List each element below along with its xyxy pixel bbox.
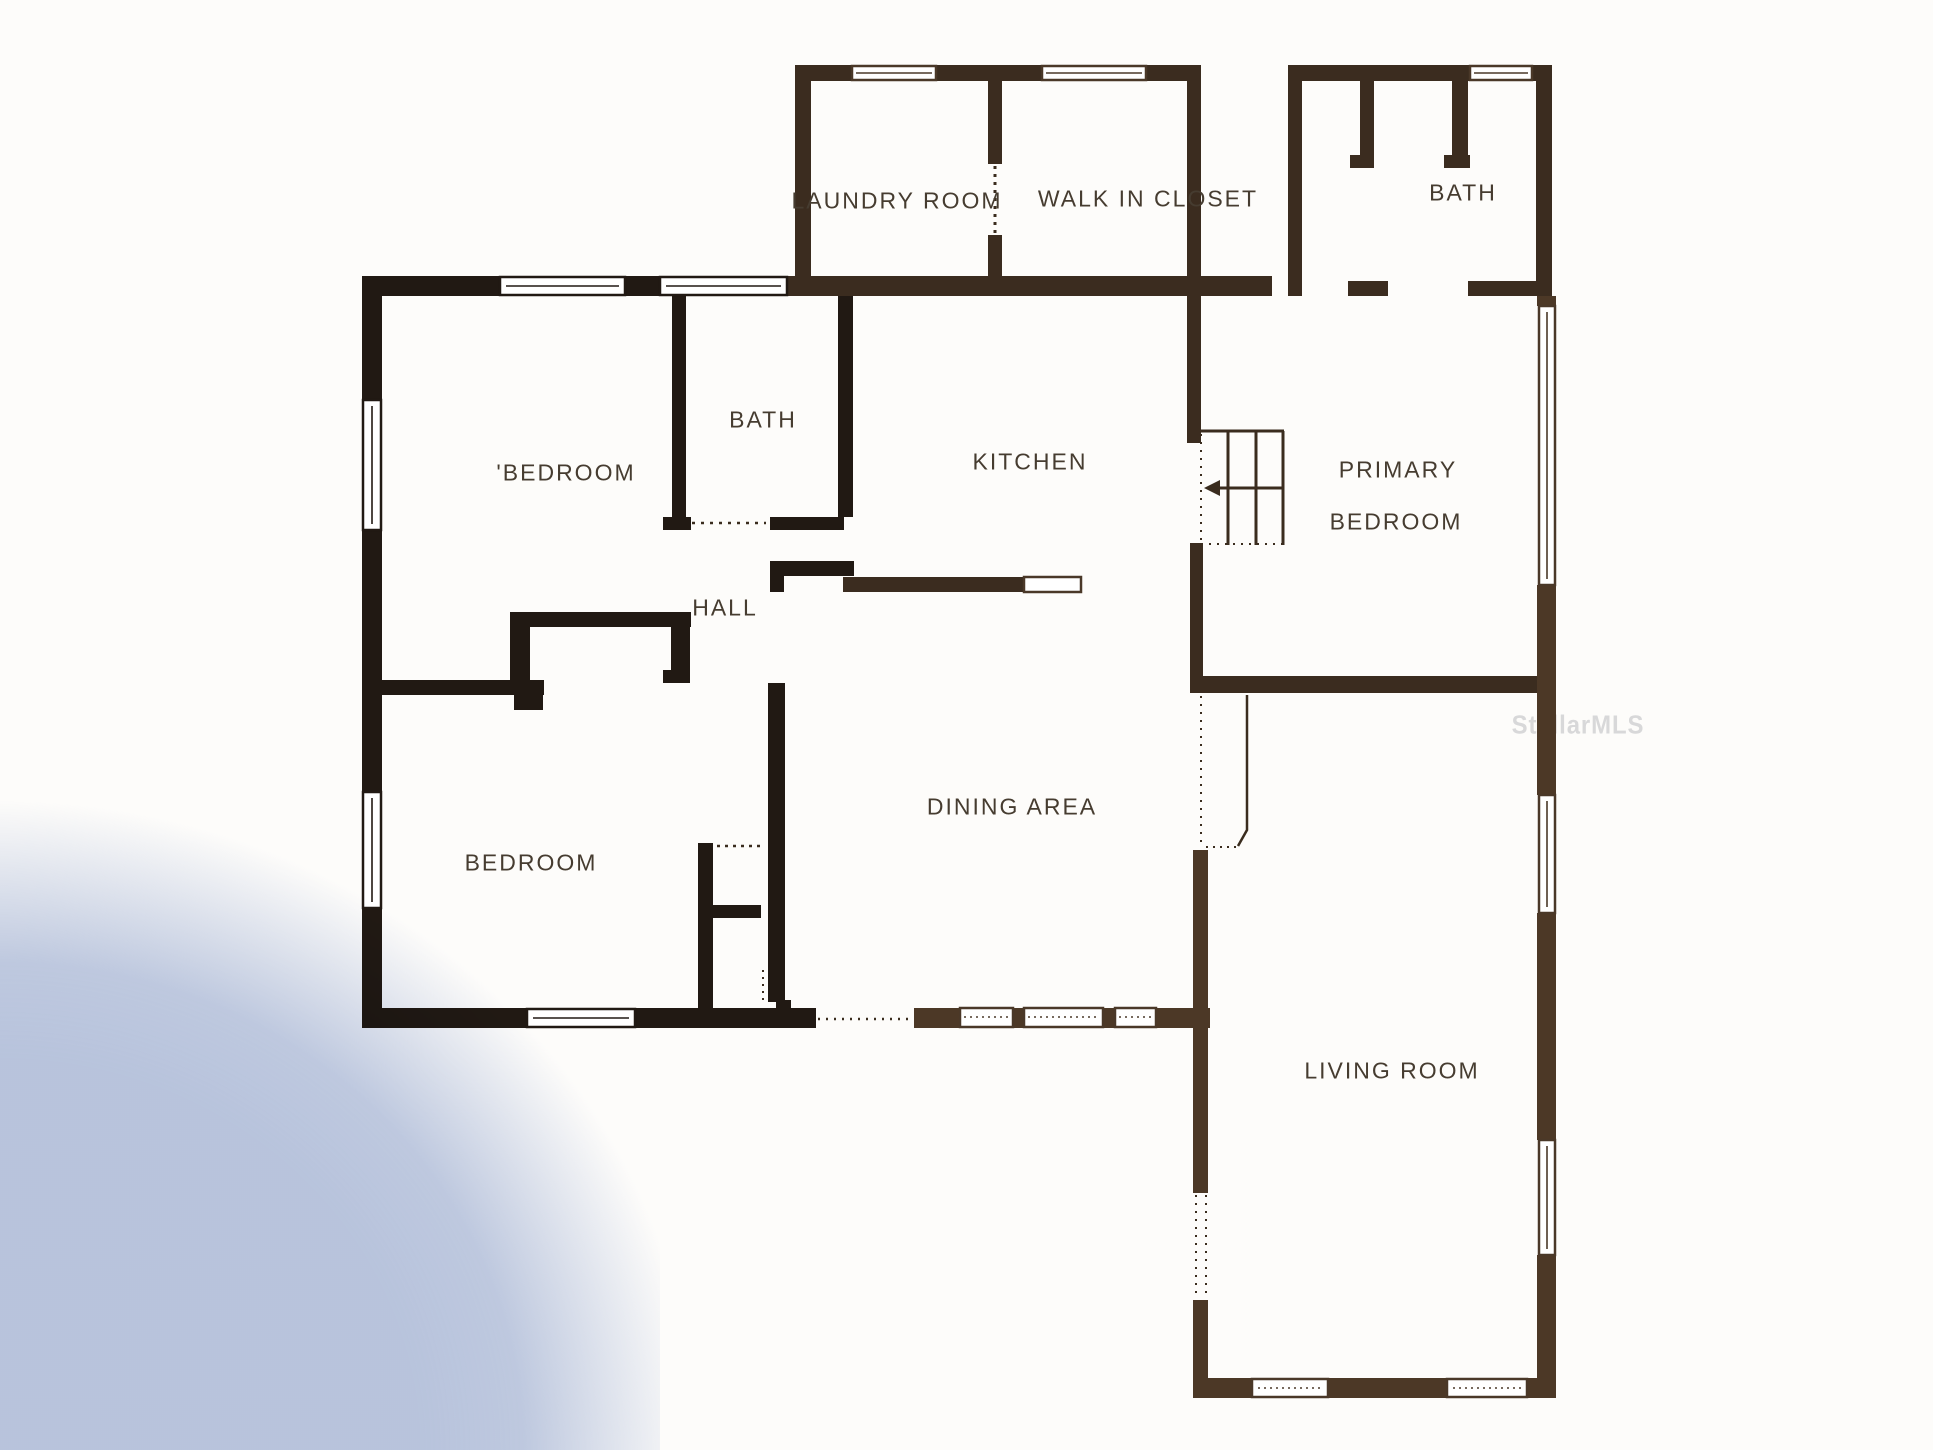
room-label-laundry: LAUNDRY ROOM [791,188,1002,215]
room-label-primary-line1: PRIMARY [1339,457,1457,484]
room-label-dining: DINING AREA [927,794,1097,821]
room-label-hall: HALL [692,595,758,622]
room-label-living: LIVING ROOM [1304,1058,1479,1085]
room-label-primary-line2: BEDROOM [1330,509,1463,536]
floor-plan-page: StellarMLS [0,0,1933,1450]
room-label-bedroom-front: 'BEDROOM [496,460,635,487]
room-label-kitchen: KITCHEN [973,449,1088,476]
room-labels: LAUNDRY ROOM WALK IN CLOSET BATH 'BEDROO… [0,0,1933,1450]
room-label-bedroom-lower: BEDROOM [465,850,598,877]
room-label-walk-in-closet: WALK IN CLOSET [1038,186,1258,213]
room-label-bath-upper: BATH [1429,180,1497,207]
room-label-bath-main: BATH [729,407,797,434]
